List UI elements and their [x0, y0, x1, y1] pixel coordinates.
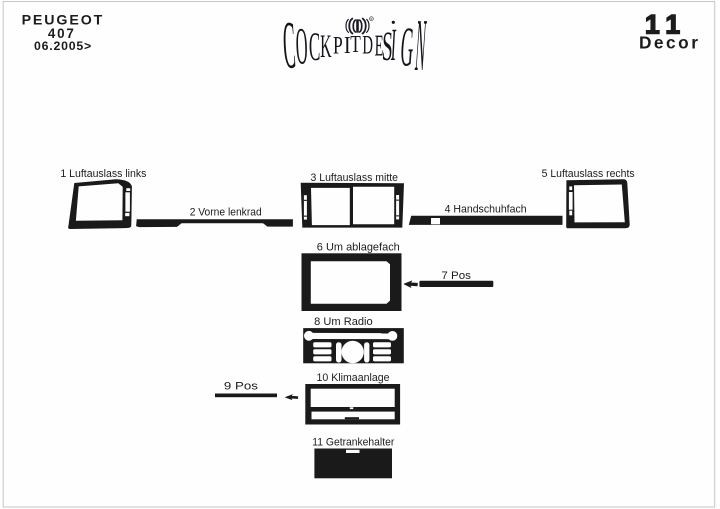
- svg-text:9 Pos: 9 Pos: [224, 381, 259, 393]
- svg-text:D: D: [362, 30, 373, 60]
- svg-text:6 Um ablagefach: 6 Um ablagefach: [317, 242, 400, 254]
- svg-text:T: T: [350, 30, 361, 58]
- svg-text:P: P: [333, 30, 343, 59]
- svg-text:4 Handschuhfach: 4 Handschuhfach: [445, 204, 527, 216]
- svg-text:O: O: [295, 18, 309, 76]
- svg-text:11 Getrankehalter: 11 Getrankehalter: [312, 436, 394, 448]
- svg-text:5 Luftauslass rechts: 5 Luftauslass rechts: [542, 168, 636, 180]
- svg-text:Decor: Decor: [639, 33, 700, 53]
- svg-text:K: K: [320, 28, 332, 65]
- svg-text:10 Klimaanlage: 10 Klimaanlage: [317, 372, 390, 384]
- svg-text:7 Pos: 7 Pos: [441, 270, 471, 282]
- svg-text:8 Um Radio: 8 Um Radio: [314, 316, 373, 328]
- svg-text:06.2005>: 06.2005>: [34, 39, 92, 53]
- svg-text:3 Luftauslass mitte: 3 Luftauslass mitte: [311, 172, 399, 184]
- svg-text:C: C: [308, 23, 320, 69]
- svg-text:1 Luftauslass links: 1 Luftauslass links: [60, 168, 147, 180]
- svg-text:2 Vorne lenkrad: 2 Vorne lenkrad: [190, 206, 262, 218]
